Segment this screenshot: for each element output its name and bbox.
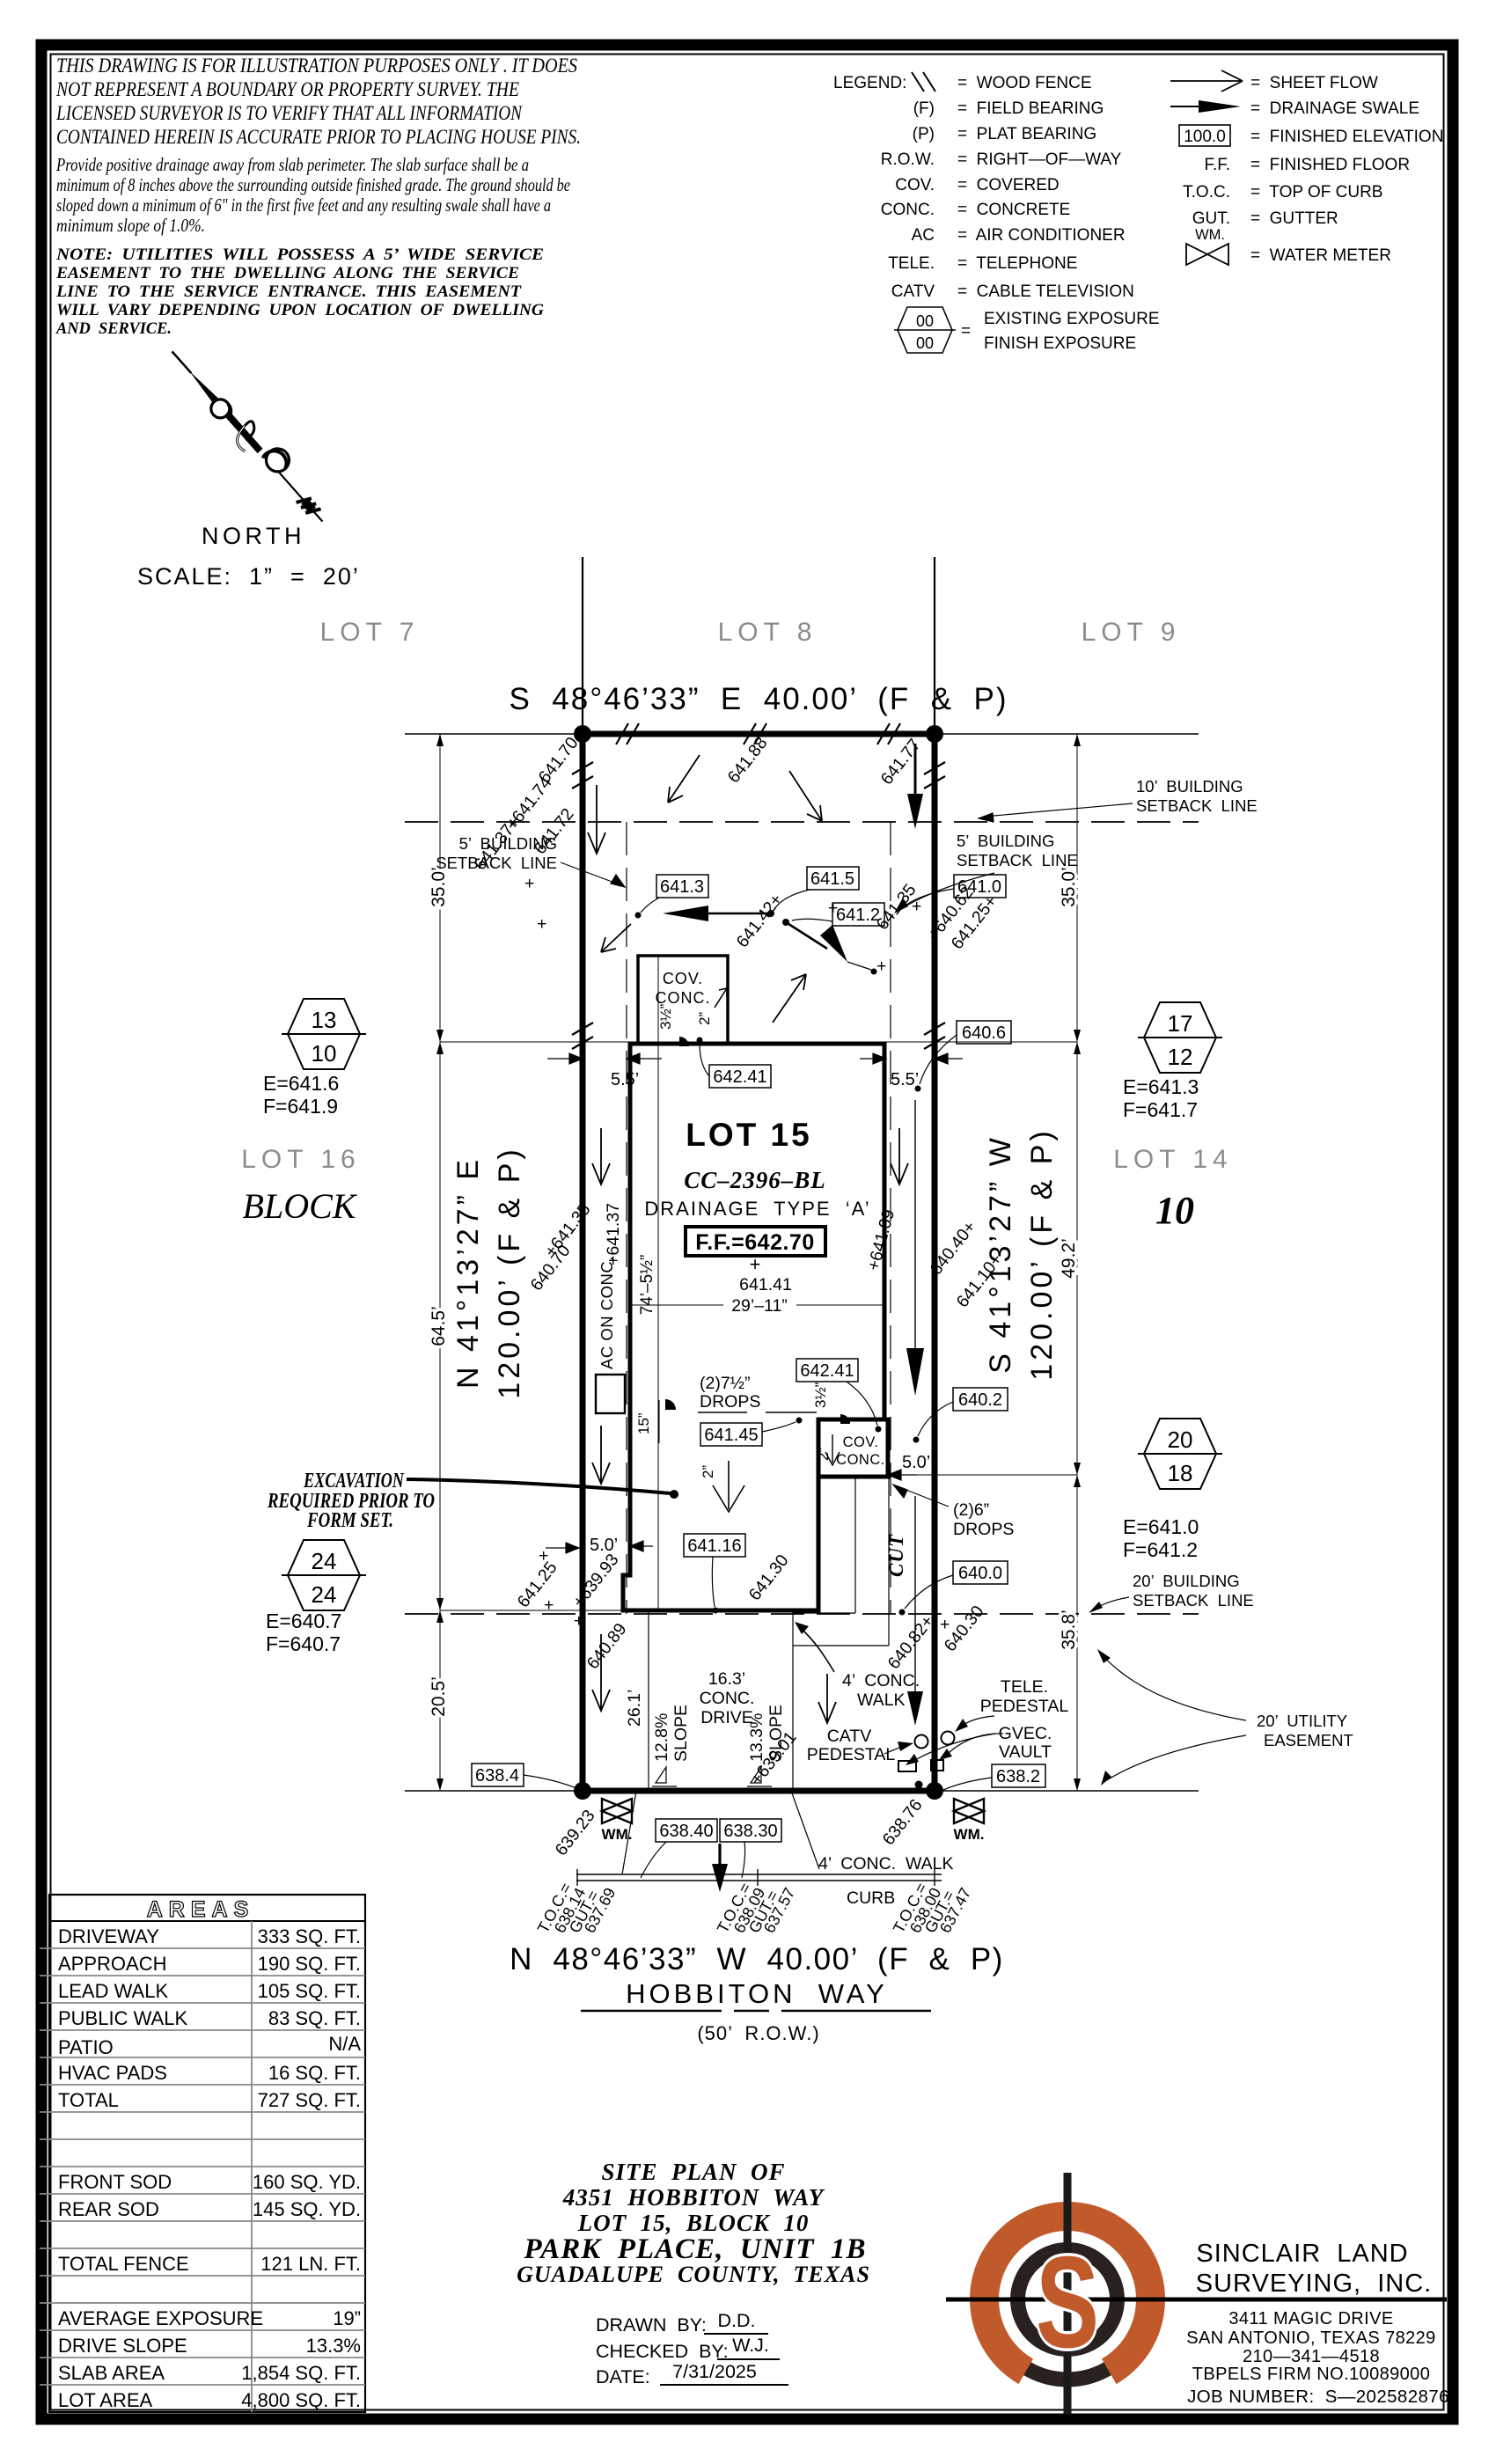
- svg-text:641.5: 641.5: [810, 869, 854, 889]
- svg-text:13: 13: [312, 1007, 337, 1033]
- svg-text:CONC.: CONC.: [836, 1452, 885, 1468]
- svg-text:35.8’: 35.8’: [1059, 1610, 1079, 1650]
- svg-text:+: +: [750, 1253, 761, 1275]
- svg-text:JOB NUMBER: S—202582876: JOB NUMBER: S—202582876: [1187, 2387, 1449, 2407]
- svg-text:5.0’: 5.0’: [590, 1536, 618, 1555]
- svg-text:LOT 7: LOT 7: [320, 618, 420, 647]
- svg-text:THIS DRAWING IS FOR ILLUSTRATI: THIS DRAWING IS FOR ILLUSTRATION PURPOSE…: [56, 55, 577, 77]
- svg-text:17: 17: [1168, 1010, 1193, 1037]
- svg-text:12: 12: [1168, 1044, 1193, 1070]
- svg-text:(2)6”: (2)6”: [953, 1500, 989, 1520]
- svg-text:DRAWN BY:: DRAWN BY:: [596, 2314, 707, 2336]
- svg-text:638.2: 638.2: [996, 1767, 1040, 1786]
- svg-text:CATV: CATV: [891, 282, 935, 301]
- svg-text:LEGEND:: LEGEND:: [833, 74, 906, 92]
- svg-text:20’ UTILITY: 20’ UTILITY: [1257, 1712, 1347, 1730]
- svg-text:+: +: [544, 1595, 554, 1615]
- svg-text:= GUTTER: = GUTTER: [1250, 209, 1338, 228]
- svg-text:CONTAINED HEREIN IS ACCURATE P: CONTAINED HEREIN IS ACCURATE PRIOR TO PL…: [56, 126, 581, 148]
- svg-text:SITE PLAN OF: SITE PLAN OF: [601, 2159, 785, 2185]
- svg-text:120.00’ (F & P): 120.00’ (F & P): [493, 1146, 526, 1398]
- svg-text:35.0’: 35.0’: [429, 867, 449, 907]
- svg-text:LINE TO THE SERVICE ENTRAN: LINE TO THE SERVICE ENTRANCE. THIS EASEM…: [55, 282, 523, 301]
- svg-text:641.25: 641.25: [514, 1558, 561, 1611]
- svg-text:WM.: WM.: [1195, 227, 1225, 243]
- svg-text:642.41: 642.41: [800, 1361, 854, 1381]
- svg-text:NOT REPRESENT A BOUNDARY OR PR: NOT REPRESENT A BOUNDARY OR PROPERTY SUR…: [55, 78, 519, 100]
- svg-text:10’ BUILDING: 10’ BUILDING: [1136, 777, 1243, 796]
- svg-text:639.23: 639.23: [552, 1807, 599, 1860]
- svg-text:+: +: [537, 914, 546, 934]
- svg-text:AND SERVICE.: AND SERVICE.: [55, 319, 172, 338]
- svg-text:= SHEET FLOW: = SHEET FLOW: [1250, 74, 1378, 92]
- svg-text:COV.: COV.: [843, 1434, 879, 1450]
- svg-text:NORTH: NORTH: [202, 523, 305, 549]
- svg-text:F=640.7: F=640.7: [266, 1632, 341, 1655]
- svg-text:641.30: 641.30: [745, 1551, 793, 1604]
- svg-text:(P): (P): [913, 125, 935, 143]
- svg-text:641.42+: 641.42+: [733, 891, 787, 952]
- svg-text:DRIVE: DRIVE: [700, 1708, 753, 1727]
- svg-text:2”: 2”: [700, 1465, 716, 1478]
- svg-text:16.3’: 16.3’: [708, 1669, 745, 1689]
- svg-text:+: +: [940, 1615, 950, 1634]
- svg-text:LOT 16: LOT 16: [241, 1145, 361, 1174]
- svg-text:2”: 2”: [696, 1012, 713, 1025]
- svg-text:AVERAGE EXPOSURE: AVERAGE EXPOSURE: [58, 2307, 263, 2329]
- svg-text:E=641.0: E=641.0: [1123, 1515, 1199, 1538]
- svg-text:18: 18: [1168, 1460, 1193, 1486]
- svg-text:00: 00: [916, 334, 934, 352]
- svg-text:13.3%: 13.3%: [306, 2335, 361, 2357]
- svg-text:160 SQ. YD.: 160 SQ. YD.: [253, 2171, 361, 2193]
- svg-text:74’–5½”: 74’–5½”: [638, 1255, 656, 1316]
- svg-text:CC–2396–BL: CC–2396–BL: [684, 1167, 826, 1193]
- svg-text:EASEMENT TO THE DWELLING A: EASEMENT TO THE DWELLING ALONG THE SERVI…: [55, 264, 519, 282]
- svg-text:641.45: 641.45: [704, 1426, 758, 1445]
- svg-text:145 SQ. YD.: 145 SQ. YD.: [253, 2198, 361, 2220]
- svg-text:LOT 8: LOT 8: [718, 618, 818, 647]
- svg-text:R.O.W.: R.O.W.: [881, 150, 935, 169]
- svg-text:= TELEPHONE: = TELEPHONE: [957, 254, 1077, 273]
- svg-text:N/A: N/A: [328, 2033, 361, 2055]
- svg-text:minimum of 8 inches above the: minimum of 8 inches above the surroundin…: [56, 174, 570, 195]
- svg-text:727 SQ. FT.: 727 SQ. FT.: [258, 2089, 361, 2111]
- svg-text:641.77: 641.77: [877, 736, 925, 789]
- svg-text:10: 10: [312, 1040, 337, 1067]
- svg-text:EXISTING EXPOSURE: EXISTING EXPOSURE: [984, 310, 1160, 328]
- svg-text:D.D.: D.D.: [718, 2310, 756, 2331]
- svg-text:DROPS: DROPS: [953, 1520, 1014, 1539]
- svg-text:190 SQ. FT.: 190 SQ. FT.: [258, 1953, 361, 1975]
- svg-text:N 41°13’27” E: N 41°13’27” E: [451, 1156, 485, 1389]
- svg-text:DRIVEWAY: DRIVEWAY: [58, 1925, 159, 1947]
- svg-text:TOTAL FENCE: TOTAL FENCE: [58, 2253, 189, 2275]
- svg-text:GVEC.: GVEC.: [999, 1724, 1052, 1743]
- svg-text:F.F.: F.F.: [1204, 156, 1230, 174]
- svg-text:DRAINAGE TYPE ‘A’: DRAINAGE TYPE ‘A’: [644, 1198, 870, 1220]
- svg-text:= DRAINAGE SWALE: = DRAINAGE SWALE: [1250, 99, 1419, 118]
- svg-text:WM.: WM.: [602, 1826, 633, 1843]
- svg-text:PARK PLACE, UNIT 1B: PARK PLACE, UNIT 1B: [523, 2233, 866, 2265]
- svg-text:3½”: 3½”: [812, 1382, 829, 1408]
- svg-text:COV.: COV.: [663, 970, 703, 987]
- svg-text:641.16: 641.16: [687, 1536, 741, 1556]
- svg-text:AREAS: AREAS: [147, 1897, 255, 1922]
- svg-text:LOT AREA: LOT AREA: [58, 2389, 153, 2411]
- svg-text:CURB: CURB: [847, 1888, 895, 1908]
- svg-text:= WATER METER: = WATER METER: [1250, 246, 1391, 265]
- svg-text:= PLAT BEARING: = PLAT BEARING: [957, 125, 1096, 143]
- svg-text:DATE:: DATE:: [596, 2366, 650, 2387]
- svg-text:WM.: WM.: [954, 1826, 985, 1843]
- svg-text:SETBACK LINE: SETBACK LINE: [1133, 1591, 1254, 1610]
- svg-text:12.8%: 12.8%: [652, 1713, 671, 1762]
- svg-text:= RIGHT—OF—WAY: = RIGHT—OF—WAY: [957, 150, 1122, 169]
- svg-text:16 SQ. FT.: 16 SQ. FT.: [268, 2062, 361, 2084]
- svg-text:24: 24: [312, 1548, 337, 1574]
- svg-text:SAN ANTONIO, TEXAS 78229: SAN ANTONIO, TEXAS 78229: [1186, 2328, 1435, 2348]
- svg-text:+: +: [539, 1546, 548, 1566]
- svg-text:= WOOD FENCE: = WOOD FENCE: [957, 74, 1092, 92]
- svg-text:64.5’: 64.5’: [429, 1306, 449, 1346]
- svg-text:20: 20: [1168, 1426, 1193, 1453]
- svg-text:WALK: WALK: [857, 1690, 906, 1710]
- svg-text:640.2: 640.2: [958, 1390, 1002, 1410]
- svg-text:+: +: [828, 898, 838, 918]
- svg-text:19”: 19”: [333, 2307, 361, 2329]
- svg-text:638.30: 638.30: [723, 1822, 777, 1841]
- svg-text:641.41: 641.41: [739, 1275, 792, 1294]
- svg-text:(50’ R.O.W.): (50’ R.O.W.): [697, 2022, 819, 2044]
- svg-text:= COVERED: = COVERED: [957, 176, 1060, 194]
- svg-text:5’ BUILDING: 5’ BUILDING: [957, 832, 1054, 850]
- svg-text:CUT: CUT: [885, 1534, 907, 1577]
- svg-text:SLAB AREA: SLAB AREA: [58, 2362, 165, 2384]
- svg-text:E=640.7: E=640.7: [266, 1610, 341, 1632]
- svg-text:20.5’: 20.5’: [429, 1676, 449, 1717]
- svg-text:E=641.6: E=641.6: [263, 1072, 339, 1095]
- svg-text:APPROACH: APPROACH: [58, 1953, 166, 1975]
- svg-text:= CONCRETE: = CONCRETE: [957, 201, 1070, 219]
- svg-text:LEAD WALK: LEAD WALK: [58, 1980, 168, 2002]
- svg-text:(F): (F): [913, 99, 935, 118]
- svg-text:S 48°46’33” E 40.00’ (F &: S 48°46’33” E 40.00’ (F & P): [509, 682, 1008, 716]
- svg-text:333 SQ. FT.: 333 SQ. FT.: [258, 1925, 361, 1947]
- svg-text:TELE.: TELE.: [1001, 1677, 1048, 1697]
- svg-text:640.6: 640.6: [962, 1023, 1006, 1043]
- svg-text:minimum slope of 1.0%.: minimum slope of 1.0%.: [56, 215, 205, 236]
- svg-text:TOTAL: TOTAL: [58, 2089, 119, 2111]
- svg-text:100.0: 100.0: [1184, 128, 1226, 146]
- svg-text:4’ CONC. WALK: 4’ CONC. WALK: [818, 1854, 954, 1874]
- svg-text:105 SQ. FT.: 105 SQ. FT.: [258, 1980, 361, 2002]
- svg-text:20’ BUILDING: 20’ BUILDING: [1133, 1572, 1240, 1590]
- svg-text:E=641.3: E=641.3: [1123, 1075, 1199, 1098]
- svg-text:SCALE: 1” = 20’: SCALE: 1” = 20’: [137, 563, 360, 590]
- svg-text:SINCLAIR LAND: SINCLAIR LAND: [1196, 2240, 1408, 2268]
- svg-text:AC ON CONC.: AC ON CONC.: [598, 1256, 616, 1369]
- svg-text:BLOCK: BLOCK: [243, 1186, 358, 1226]
- svg-text:29’–11”: 29’–11”: [731, 1296, 788, 1316]
- svg-text:F=641.9: F=641.9: [263, 1095, 338, 1118]
- svg-text:TBPELS FIRM NO.10089000: TBPELS FIRM NO.10089000: [1192, 2365, 1430, 2384]
- svg-text:4351 HOBBITON WAY: 4351 HOBBITON WAY: [562, 2184, 825, 2211]
- svg-text:LOT 15, BLOCK 10: LOT 15, BLOCK 10: [577, 2210, 810, 2236]
- svg-text:CONC.: CONC.: [700, 1689, 755, 1708]
- svg-text:+639.93: +639.93: [569, 1551, 623, 1612]
- svg-text:PEDESTAL: PEDESTAL: [980, 1697, 1069, 1716]
- svg-text:= FINISHED FLOOR: = FINISHED FLOOR: [1250, 156, 1410, 174]
- svg-text:N 48°46’33” W 40.00’ (F &: N 48°46’33” W 40.00’ (F & P): [510, 1942, 1004, 1976]
- svg-text:NOTE: UTILITIES WILL POSSES: NOTE: UTILITIES WILL POSSESS A 5’ WIDE S…: [55, 246, 544, 264]
- svg-text:24: 24: [312, 1581, 337, 1608]
- svg-text:T.O.C.: T.O.C.: [1183, 183, 1230, 202]
- svg-text:(2)7½”: (2)7½”: [700, 1374, 750, 1393]
- svg-text:EASEMENT: EASEMENT: [1264, 1731, 1353, 1749]
- svg-text:=: =: [961, 322, 971, 341]
- svg-text:00: 00: [916, 312, 934, 330]
- svg-text:F=641.2: F=641.2: [1123, 1538, 1198, 1561]
- svg-text:HOBBITON WAY: HOBBITON WAY: [626, 1978, 888, 2009]
- svg-text:= TOP OF CURB: = TOP OF CURB: [1250, 183, 1382, 202]
- svg-text:3411 MAGIC DRIVE: 3411 MAGIC DRIVE: [1228, 2309, 1393, 2328]
- svg-text:26.1’: 26.1’: [625, 1690, 644, 1727]
- svg-text:210—341—4518: 210—341—4518: [1243, 2347, 1380, 2366]
- svg-text:LICENSED SURVEYOR IS TO VERIFY: LICENSED SURVEYOR IS TO VERIFY THAT ALL …: [55, 102, 523, 124]
- svg-text:CATV: CATV: [827, 1727, 872, 1746]
- svg-text:LOT 15: LOT 15: [686, 1117, 811, 1153]
- svg-text:5.5’: 5.5’: [611, 1070, 639, 1089]
- svg-text:GUADALUPE COUNTY, TEXAS: GUADALUPE COUNTY, TEXAS: [517, 2262, 870, 2287]
- svg-text:49.2’: 49.2’: [1059, 1238, 1079, 1279]
- svg-text:DRIVE SLOPE: DRIVE SLOPE: [58, 2335, 187, 2357]
- svg-text:638.76: 638.76: [879, 1796, 927, 1850]
- svg-text:641.3: 641.3: [660, 877, 704, 897]
- svg-text:WILL VARY DEPENDING UPON L: WILL VARY DEPENDING UPON LOCATION OF DWE…: [56, 301, 544, 319]
- svg-text:120.00’ (F & P): 120.00’ (F & P): [1025, 1127, 1059, 1380]
- svg-text:FRONT SOD: FRONT SOD: [58, 2171, 172, 2193]
- svg-text:= FINISHED ELEVATION: = FINISHED ELEVATION: [1250, 128, 1443, 146]
- svg-text:PEDESTAL: PEDESTAL: [807, 1745, 896, 1764]
- svg-text:SETBACK LINE: SETBACK LINE: [436, 854, 557, 872]
- svg-text:+: +: [574, 1611, 583, 1631]
- svg-text:COV.: COV.: [895, 176, 935, 194]
- svg-text:1,854 SQ. FT.: 1,854 SQ. FT.: [241, 2362, 361, 2384]
- svg-text:5.5’: 5.5’: [891, 1070, 919, 1089]
- svg-text:AC: AC: [912, 226, 935, 245]
- svg-text:15”: 15”: [635, 1412, 652, 1434]
- svg-text:83 SQ. FT.: 83 SQ. FT.: [268, 2007, 361, 2029]
- svg-text:SETBACK LINE: SETBACK LINE: [957, 851, 1078, 869]
- svg-text:FINISH EXPOSURE: FINISH EXPOSURE: [984, 334, 1136, 353]
- svg-text:638.40: 638.40: [659, 1822, 713, 1841]
- svg-text:REAR SOD: REAR SOD: [58, 2198, 159, 2220]
- svg-text:+641.37: +641.37: [604, 1203, 623, 1265]
- svg-text:+: +: [876, 957, 886, 976]
- svg-text:10: 10: [1155, 1189, 1194, 1232]
- svg-text:F.F.=642.70: F.F.=642.70: [695, 1230, 814, 1255]
- svg-text:LOT 14: LOT 14: [1113, 1145, 1233, 1174]
- svg-text:TELE.: TELE.: [888, 254, 935, 273]
- svg-text:+: +: [524, 874, 534, 893]
- svg-text:7/31/2025: 7/31/2025: [672, 2361, 757, 2382]
- svg-text:640.0: 640.0: [958, 1564, 1002, 1583]
- svg-text:DROPS: DROPS: [700, 1392, 760, 1412]
- svg-text:= CABLE TELEVISION: = CABLE TELEVISION: [957, 282, 1134, 301]
- svg-text:641.88: 641.88: [724, 734, 772, 788]
- svg-text:= AIR CONDITIONER: = AIR CONDITIONER: [957, 226, 1126, 245]
- svg-text:CHECKED BY:: CHECKED BY:: [596, 2341, 729, 2362]
- svg-text:HVAC PADS: HVAC PADS: [58, 2062, 167, 2084]
- svg-text:5.0’: 5.0’: [902, 1453, 930, 1472]
- svg-text:VAULT: VAULT: [999, 1742, 1052, 1762]
- svg-text:= FIELD BEARING: = FIELD BEARING: [957, 99, 1104, 118]
- svg-text:638.4: 638.4: [475, 1766, 519, 1786]
- svg-text:SLOPE: SLOPE: [671, 1705, 691, 1762]
- svg-text:3½”: 3½”: [657, 1003, 674, 1030]
- svg-text:CONC.: CONC.: [881, 201, 935, 219]
- svg-text:5’ BUILDING: 5’ BUILDING: [459, 834, 557, 853]
- svg-text:640.82+: 640.82+: [884, 1612, 938, 1674]
- svg-text:PUBLIC WALK: PUBLIC WALK: [58, 2007, 187, 2029]
- svg-text:GUT.: GUT.: [1192, 209, 1230, 228]
- svg-text:S: S: [1036, 2231, 1099, 2375]
- svg-text:121 LN. FT.: 121 LN. FT.: [260, 2253, 361, 2275]
- svg-text:642.41: 642.41: [713, 1067, 766, 1087]
- svg-text:640.89: 640.89: [583, 1620, 631, 1674]
- svg-text:LOT 9: LOT 9: [1082, 618, 1181, 647]
- svg-text:4,800 SQ. FT.: 4,800 SQ. FT.: [241, 2389, 361, 2411]
- svg-text:SURVEYING, INC.: SURVEYING, INC.: [1196, 2270, 1432, 2298]
- svg-text:PATIO: PATIO: [58, 2036, 114, 2058]
- svg-text:W.J.: W.J.: [732, 2335, 769, 2356]
- svg-text:4’ CONC.: 4’ CONC.: [842, 1671, 920, 1690]
- svg-text:sloped down a minimum of 6" in: sloped down a minimum of 6" in the first…: [56, 194, 551, 216]
- svg-text:Provide positive drainage away: Provide positive drainage away from slab…: [55, 154, 529, 175]
- svg-text:SETBACK LINE: SETBACK LINE: [1136, 796, 1258, 815]
- svg-text:F=641.7: F=641.7: [1123, 1098, 1198, 1121]
- svg-text:FORM SET.: FORM SET.: [306, 1509, 393, 1532]
- svg-text:35.0’: 35.0’: [1059, 867, 1079, 907]
